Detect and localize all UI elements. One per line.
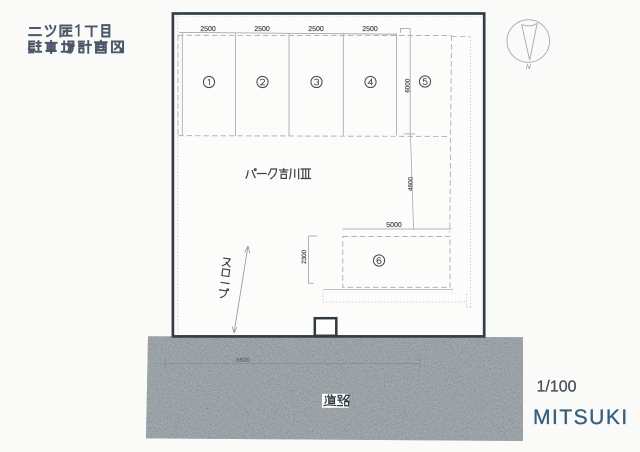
svg-text:6600: 6600 bbox=[236, 357, 250, 364]
svg-text:2500: 2500 bbox=[200, 26, 216, 33]
svg-text:MITSUKI: MITSUKI bbox=[533, 406, 629, 429]
svg-text:2500: 2500 bbox=[308, 26, 324, 33]
svg-text:2300: 2300 bbox=[301, 249, 308, 264]
svg-text:4600: 4600 bbox=[407, 177, 414, 192]
svg-text:2500: 2500 bbox=[254, 26, 270, 33]
svg-text:2500: 2500 bbox=[362, 26, 378, 33]
svg-text:1/100: 1/100 bbox=[537, 379, 577, 396]
svg-text:N: N bbox=[526, 64, 531, 71]
svg-text:6000: 6000 bbox=[404, 78, 411, 93]
svg-text:5000: 5000 bbox=[386, 222, 402, 229]
